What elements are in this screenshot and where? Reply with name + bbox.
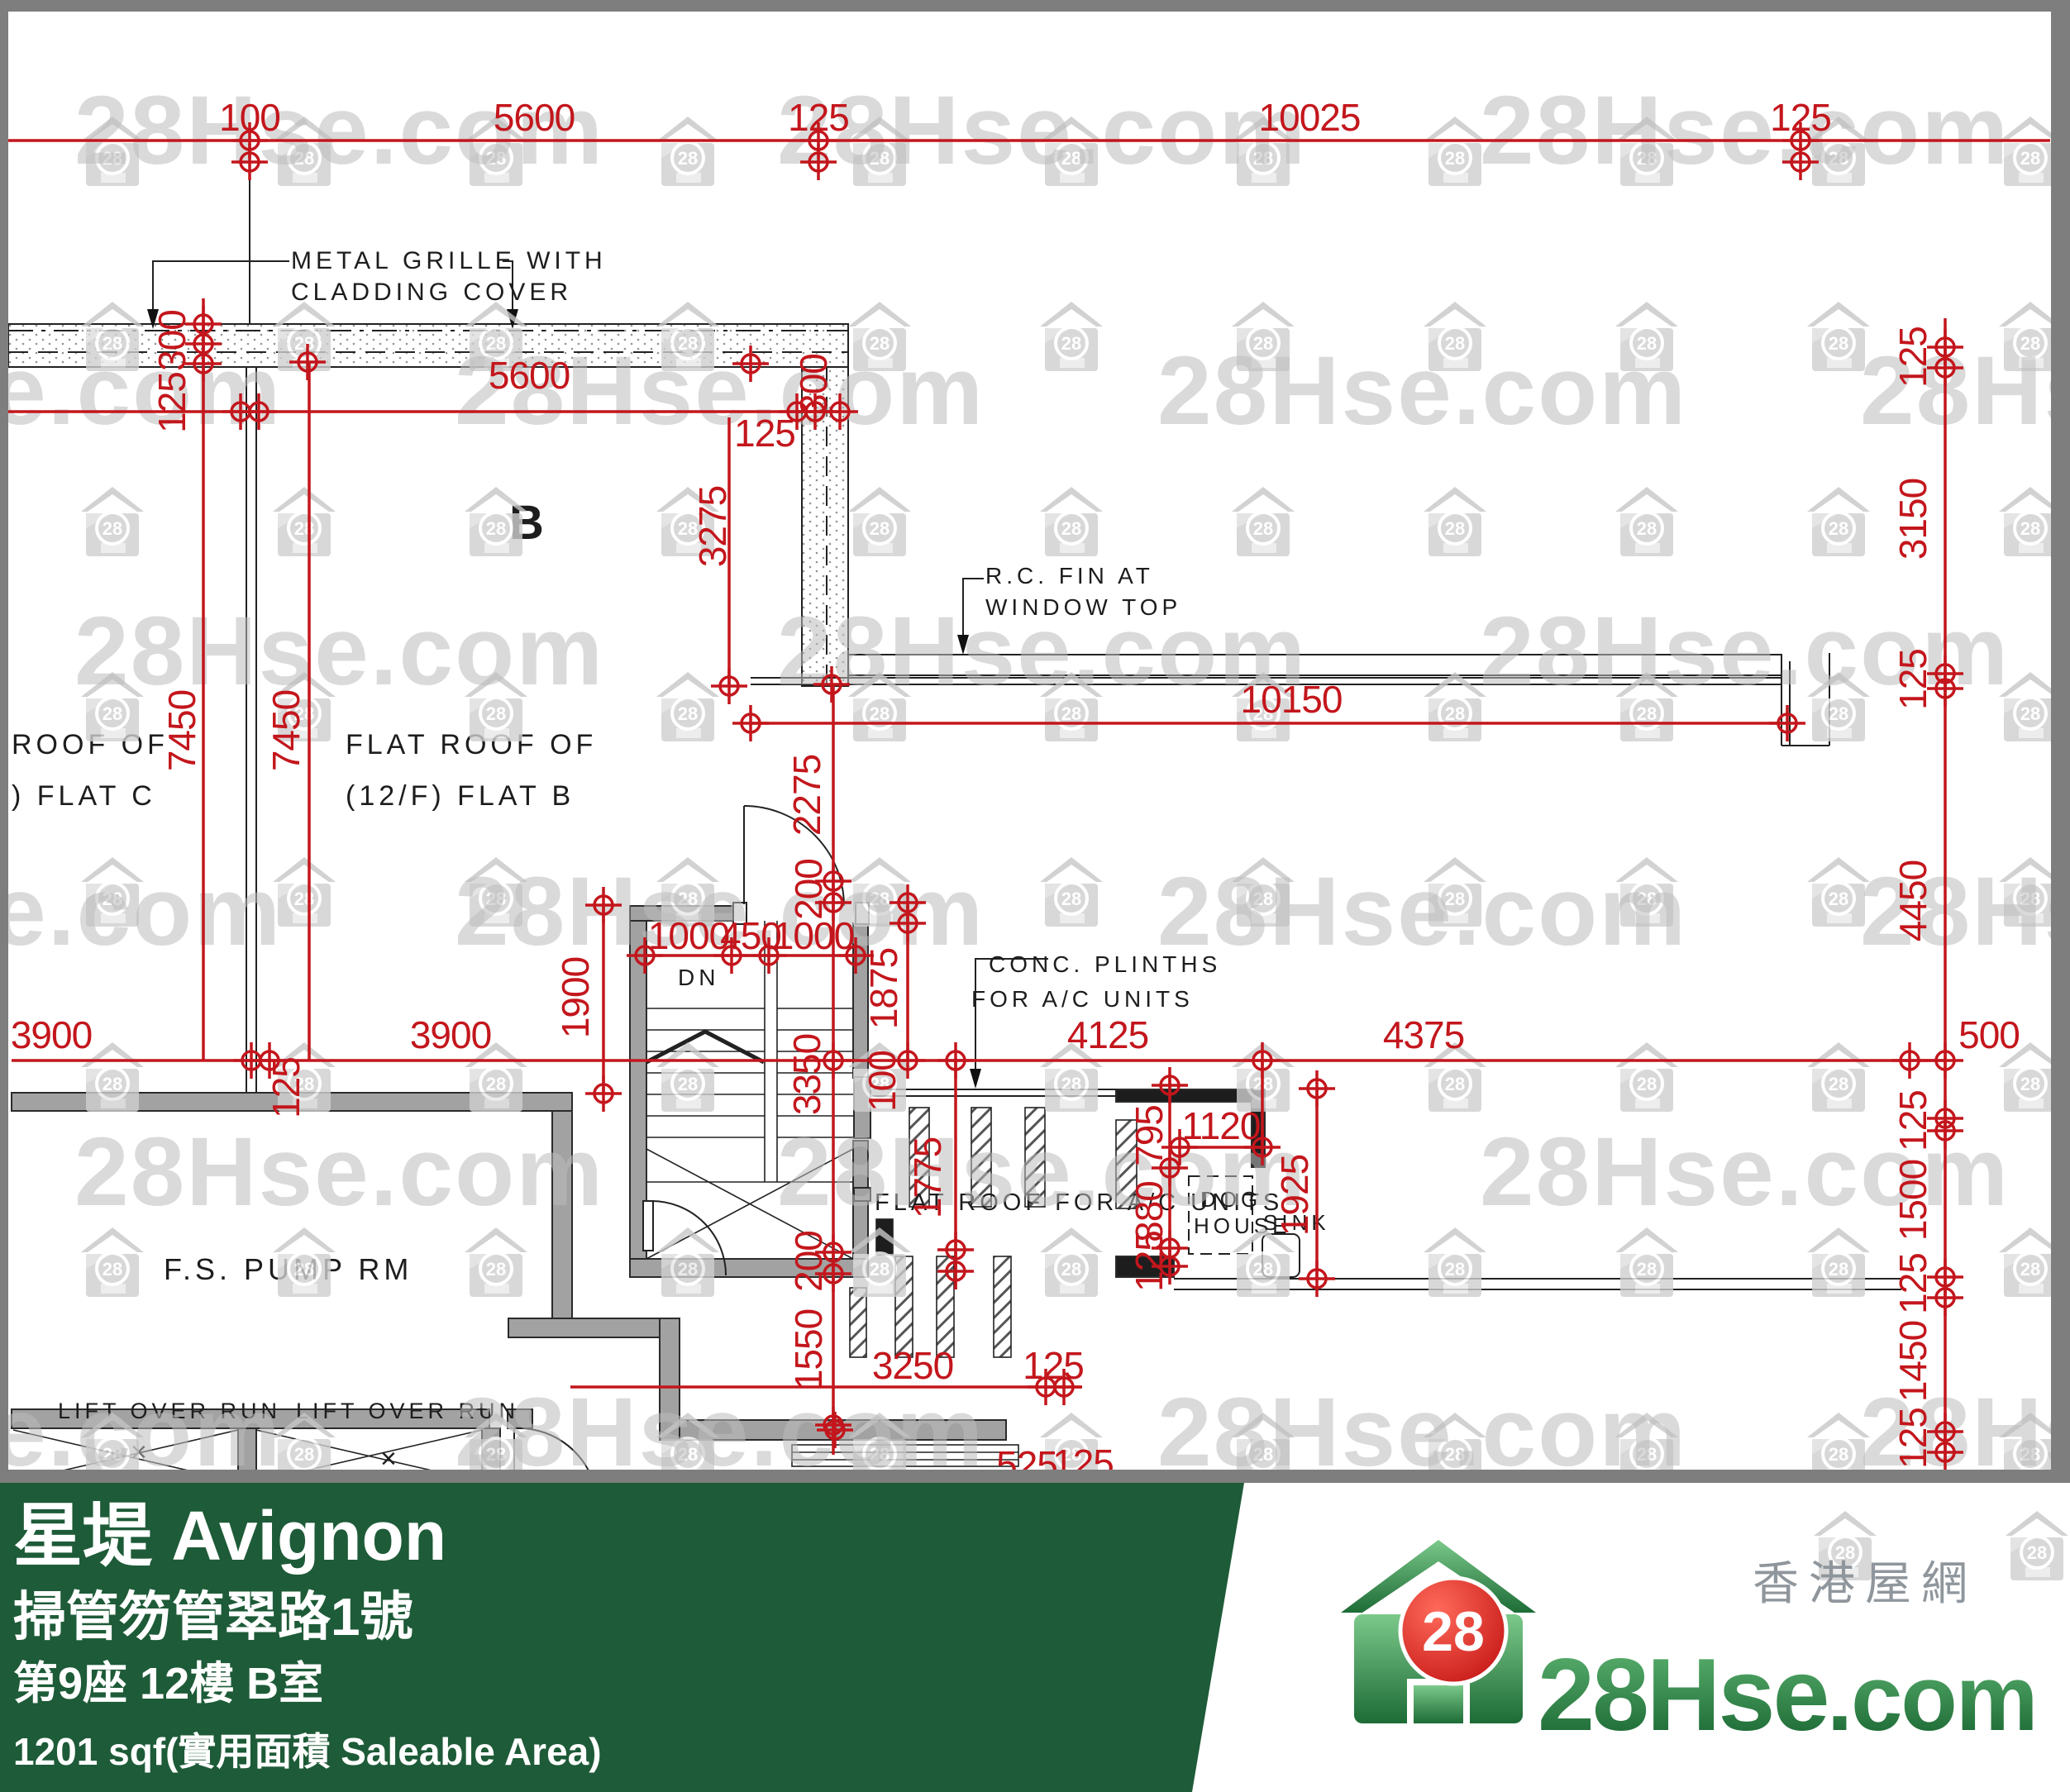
dimension-label: 4125 bbox=[1067, 1013, 1148, 1056]
crosshair-marker bbox=[289, 344, 326, 380]
crosshair-marker bbox=[813, 666, 850, 703]
dimension-label: 4375 bbox=[1383, 1013, 1464, 1056]
dimension-label: 1120 bbox=[1182, 1104, 1261, 1147]
property-title: 星堤 Avignon bbox=[13, 1501, 446, 1570]
dimension-label: 795 bbox=[1128, 1105, 1171, 1166]
dimension-label: 125 bbox=[1891, 326, 1934, 388]
dimension-label: 3250 bbox=[872, 1344, 953, 1387]
crosshair-marker bbox=[1244, 1042, 1281, 1079]
dimension-label: 125 bbox=[265, 1057, 308, 1118]
dimension-label: 3350 bbox=[785, 1034, 828, 1115]
crosshair-marker bbox=[800, 144, 837, 180]
crosshair-marker bbox=[1782, 144, 1819, 180]
dimension-label: 200 bbox=[787, 859, 830, 920]
crosshair-marker bbox=[231, 144, 268, 180]
dimension-label: 125 bbox=[1023, 1344, 1084, 1387]
dimension-label: 300 bbox=[792, 354, 835, 415]
dimension-label: 1000 bbox=[773, 914, 854, 957]
dimension-label: 1925 bbox=[1273, 1155, 1316, 1236]
dimension-label: 200 bbox=[787, 1231, 830, 1292]
crosshair-marker bbox=[711, 668, 747, 704]
crosshair-marker bbox=[241, 393, 277, 430]
logo-brand: 28Hse bbox=[1538, 1638, 1827, 1752]
dimension-label: 5600 bbox=[494, 96, 575, 139]
dimension-label: 2275 bbox=[785, 755, 828, 836]
dimension-label: 1875 bbox=[862, 948, 905, 1029]
dimension-label: 125 bbox=[734, 412, 795, 455]
dimension-label: 7450 bbox=[265, 690, 308, 771]
dimension-label: 125 bbox=[1891, 1408, 1934, 1469]
crosshair-marker bbox=[585, 1075, 622, 1112]
dimension-label: 1450 bbox=[1891, 1321, 1934, 1402]
logo-badge: 28 bbox=[1422, 1600, 1485, 1663]
dimension-label: 5600 bbox=[489, 354, 570, 397]
dimension-label: 450 bbox=[720, 914, 781, 957]
crosshair-marker bbox=[1891, 1042, 1928, 1079]
dimension-label: 10025 bbox=[1259, 96, 1361, 139]
dimension-label: 1000 bbox=[648, 914, 729, 957]
logo-tld: .com bbox=[1827, 1647, 2036, 1750]
dimension-label: 7450 bbox=[160, 690, 203, 771]
logo-28hse: 28 28Hse .com 香港屋網 bbox=[1290, 1482, 2070, 1792]
property-unit: 第9座 12樓 B室 bbox=[13, 1661, 323, 1706]
dimension-label: 1550 bbox=[787, 1309, 830, 1390]
dimension-label: 125 bbox=[150, 372, 193, 433]
crosshair-marker bbox=[1152, 1067, 1188, 1103]
dimension-label: 3275 bbox=[691, 486, 734, 567]
crosshair-marker bbox=[937, 1253, 974, 1289]
frame-bottom bbox=[0, 1470, 2070, 1483]
crosshair-marker bbox=[937, 1042, 974, 1079]
dimension-label: 3900 bbox=[11, 1013, 92, 1056]
crosshair-marker bbox=[585, 887, 622, 923]
dimension-label: 125 bbox=[788, 96, 849, 139]
dimension-label: 1775 bbox=[906, 1137, 949, 1218]
crosshair-marker bbox=[1299, 1070, 1335, 1107]
dimension-label: 3150 bbox=[1891, 479, 1934, 560]
dimension-label: 125 bbox=[1891, 649, 1934, 710]
dimension-label: 125 bbox=[1770, 96, 1831, 139]
floorplan-page: METAL GRILLE WITHCLADDING COVERBR.C. FIN… bbox=[0, 0, 2070, 1792]
dimension-label: 4450 bbox=[1891, 860, 1934, 941]
logo-site-name: 香港屋網 bbox=[1753, 1557, 1977, 1609]
property-address: 掃管笏管翠路1號 bbox=[13, 1590, 413, 1643]
crosshair-marker bbox=[1769, 705, 1805, 741]
logo-house-icon: 28 bbox=[1341, 1540, 1536, 1723]
dimension-label: 100 bbox=[219, 96, 280, 139]
crosshair-marker bbox=[732, 346, 769, 382]
dimension-label: 125 bbox=[1891, 1090, 1934, 1151]
crosshair-marker bbox=[890, 905, 926, 941]
dimension-label: 300 bbox=[150, 310, 193, 371]
dimension-label: 125 bbox=[1128, 1231, 1171, 1292]
dimension-label: 125 bbox=[1891, 1253, 1934, 1314]
dimension-label: 10150 bbox=[1241, 678, 1343, 721]
crosshair-marker bbox=[1299, 1261, 1335, 1297]
dimension-label: 500 bbox=[1958, 1013, 2020, 1056]
crosshair-marker bbox=[817, 1412, 853, 1448]
dimension-label: 1500 bbox=[1891, 1160, 1934, 1241]
property-area: 1201 sqf(實用面積 Saleable Area) bbox=[13, 1732, 602, 1771]
frame-top bbox=[0, 0, 2070, 12]
dimension-label: 100 bbox=[861, 1051, 904, 1112]
crosshair-marker bbox=[732, 705, 769, 741]
dimension-label: 1900 bbox=[554, 957, 597, 1038]
dimension-label: 3900 bbox=[410, 1013, 491, 1056]
